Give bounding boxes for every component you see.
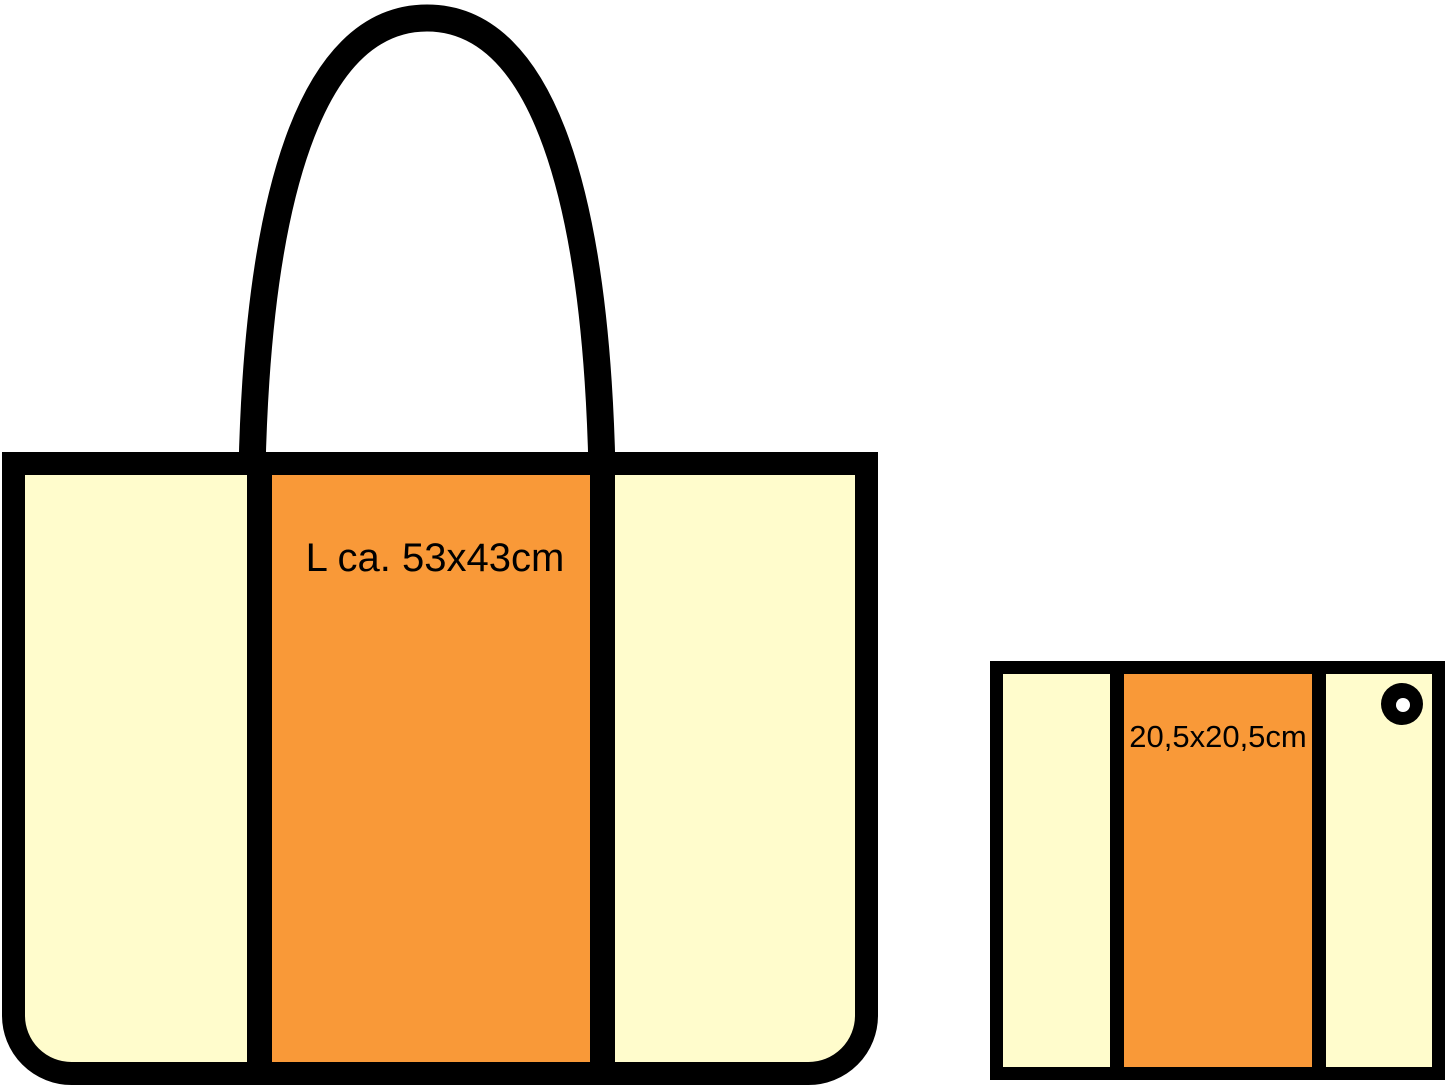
small-bag-dimension-label: 20,5x20,5cm xyxy=(1129,719,1307,754)
small-bag: 20,5x20,5cm xyxy=(997,668,1439,1075)
bag-size-diagram: L ca. 53x43cm 20,5x20,5cm xyxy=(0,0,1445,1086)
snap-button-hole xyxy=(1396,698,1410,712)
large-bag-left-strap xyxy=(247,458,272,1068)
large-bag-right-strap xyxy=(590,458,615,1068)
snap-button-icon xyxy=(1381,683,1423,725)
large-bag-handle xyxy=(252,18,602,470)
small-bag-left-strap xyxy=(1110,668,1124,1074)
small-bag-right-strap xyxy=(1312,668,1326,1074)
large-bag: L ca. 53x43cm xyxy=(14,18,867,1074)
diagram-svg: L ca. 53x43cm 20,5x20,5cm xyxy=(0,0,1445,1086)
large-bag-dimension-label: L ca. 53x43cm xyxy=(306,536,565,580)
